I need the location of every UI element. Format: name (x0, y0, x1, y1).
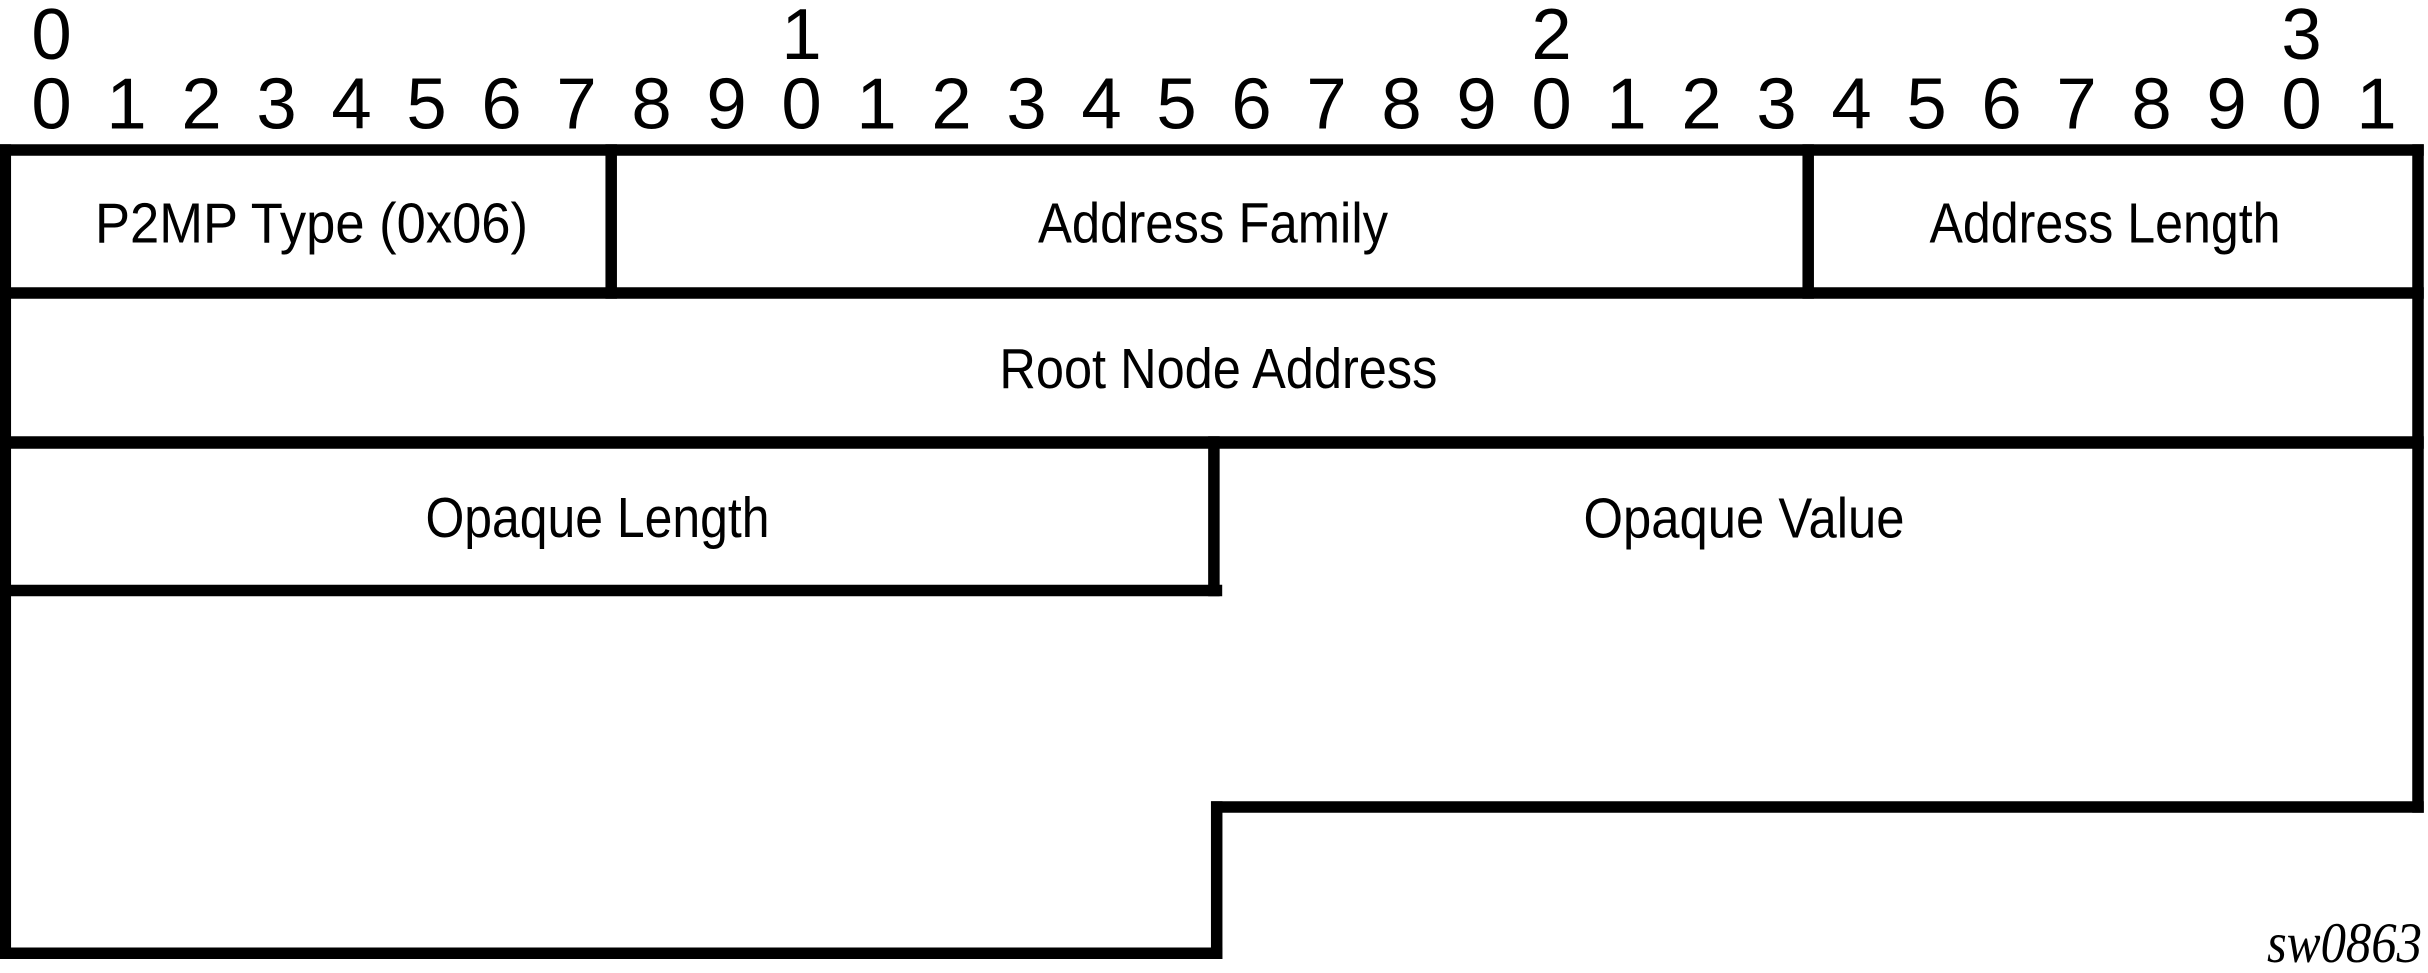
svg-text:8: 8 (1381, 64, 1421, 145)
svg-text:0: 0 (2281, 64, 2321, 145)
svg-text:P2MP Type (0x06): P2MP Type (0x06) (95, 192, 528, 256)
svg-text:2: 2 (181, 64, 221, 145)
svg-text:Root Node Address: Root Node Address (999, 337, 1437, 401)
svg-text:5: 5 (1156, 64, 1196, 145)
svg-text:5: 5 (1906, 64, 1946, 145)
svg-text:Address Family: Address Family (1038, 192, 1388, 256)
svg-text:2: 2 (931, 64, 971, 145)
svg-text:3: 3 (1756, 64, 1796, 145)
svg-text:1: 1 (106, 64, 146, 145)
svg-text:8: 8 (631, 64, 671, 145)
svg-text:1: 1 (856, 64, 896, 145)
svg-text:6: 6 (1231, 64, 1271, 145)
svg-text:9: 9 (1456, 64, 1496, 145)
svg-text:7: 7 (2056, 64, 2096, 145)
svg-text:7: 7 (1306, 64, 1346, 145)
svg-text:3: 3 (256, 64, 296, 145)
svg-text:Address Length: Address Length (1930, 192, 2281, 256)
svg-text:3: 3 (1006, 64, 1046, 145)
svg-text:4: 4 (1081, 64, 1121, 145)
svg-text:Opaque Value: Opaque Value (1584, 487, 1905, 551)
svg-text:Opaque Length: Opaque Length (426, 486, 770, 550)
svg-text:1: 1 (2356, 64, 2396, 145)
svg-text:4: 4 (1831, 64, 1871, 145)
svg-text:sw0863: sw0863 (2267, 912, 2422, 973)
svg-text:0: 0 (781, 64, 821, 145)
svg-text:9: 9 (706, 64, 746, 145)
svg-text:6: 6 (481, 64, 521, 145)
svg-text:7: 7 (556, 64, 596, 145)
svg-text:0: 0 (31, 64, 71, 145)
svg-text:2: 2 (1681, 64, 1721, 145)
svg-text:4: 4 (331, 64, 371, 145)
svg-text:6: 6 (1981, 64, 2021, 145)
svg-text:9: 9 (2206, 64, 2246, 145)
svg-text:0: 0 (1531, 64, 1571, 145)
svg-text:8: 8 (2131, 64, 2171, 145)
svg-text:5: 5 (406, 64, 446, 145)
svg-text:1: 1 (1606, 64, 1646, 145)
